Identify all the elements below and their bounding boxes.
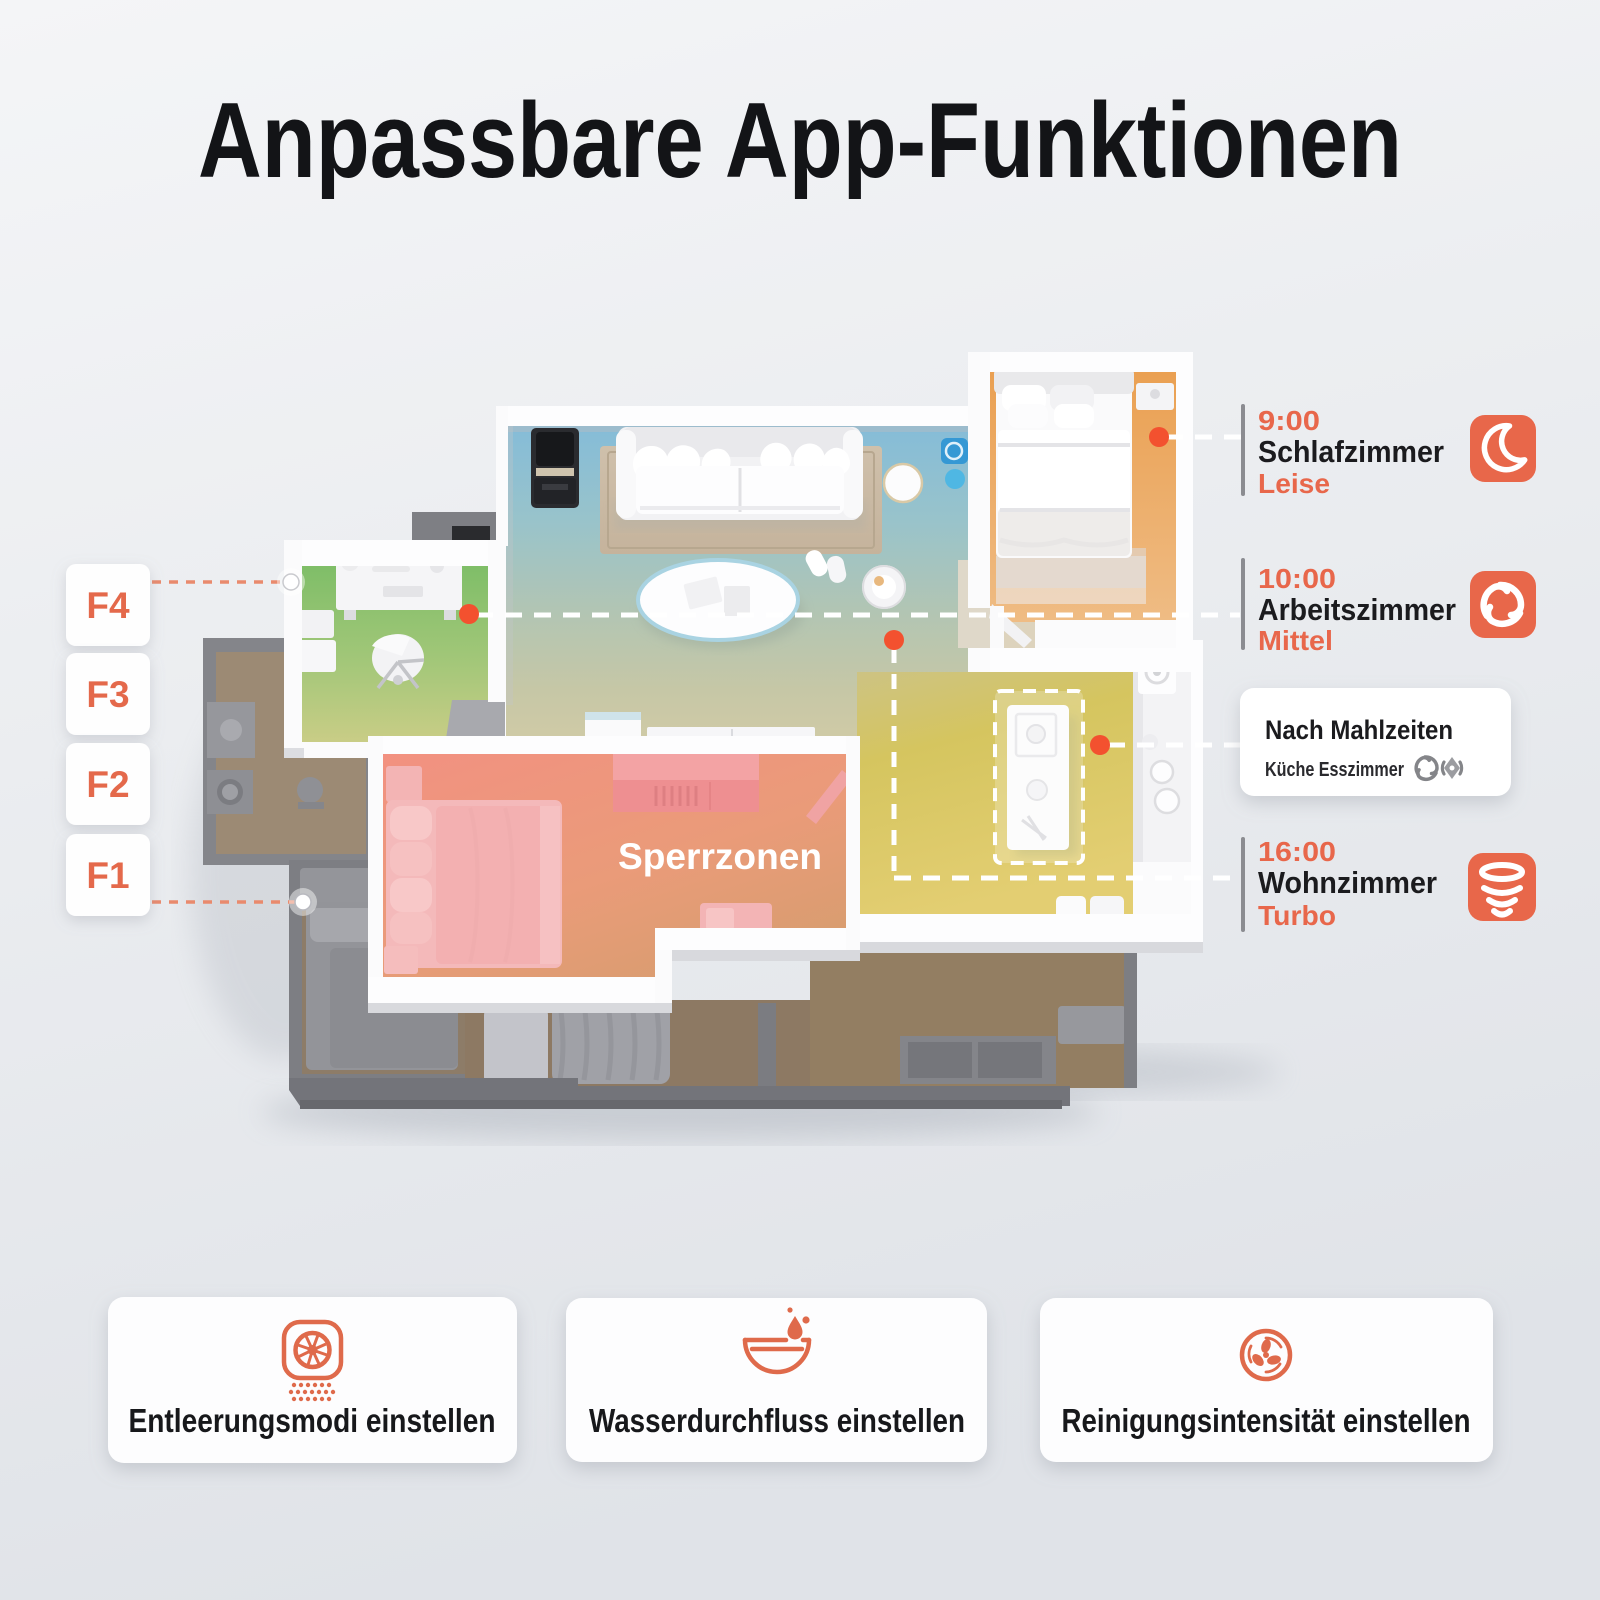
svg-text:Anpassbare App-Funktionen: Anpassbare App-Funktionen [198,80,1402,200]
svg-text:F4: F4 [86,585,130,626]
svg-text:Schlafzimmer: Schlafzimmer [1258,434,1444,469]
svg-text:Arbeitszimmer: Arbeitszimmer [1258,592,1456,627]
svg-text:Wohnzimmer: Wohnzimmer [1258,865,1437,900]
svg-text:F3: F3 [86,674,129,715]
svg-text:Turbo: Turbo [1258,900,1336,931]
svg-text:F1: F1 [86,855,129,896]
svg-text:Reinigungsintensität einstelle: Reinigungsintensität einstellen [1062,1402,1471,1439]
svg-text:Sperrzonen: Sperrzonen [618,836,822,877]
svg-text:Entleerungsmodi einstellen: Entleerungsmodi einstellen [129,1402,496,1439]
svg-text:Nach Mahlzeiten: Nach Mahlzeiten [1265,715,1453,745]
svg-text:Leise: Leise [1258,468,1330,499]
svg-text:Mittel: Mittel [1258,625,1333,656]
svg-text:16:00: 16:00 [1258,836,1336,867]
svg-text:9:00: 9:00 [1258,405,1320,436]
svg-text:10:00: 10:00 [1258,563,1336,594]
svg-text:F2: F2 [86,764,129,805]
svg-text:Wasserdurchfluss einstellen: Wasserdurchfluss einstellen [589,1402,965,1439]
svg-text:Küche Esszimmer: Küche Esszimmer [1265,759,1404,781]
